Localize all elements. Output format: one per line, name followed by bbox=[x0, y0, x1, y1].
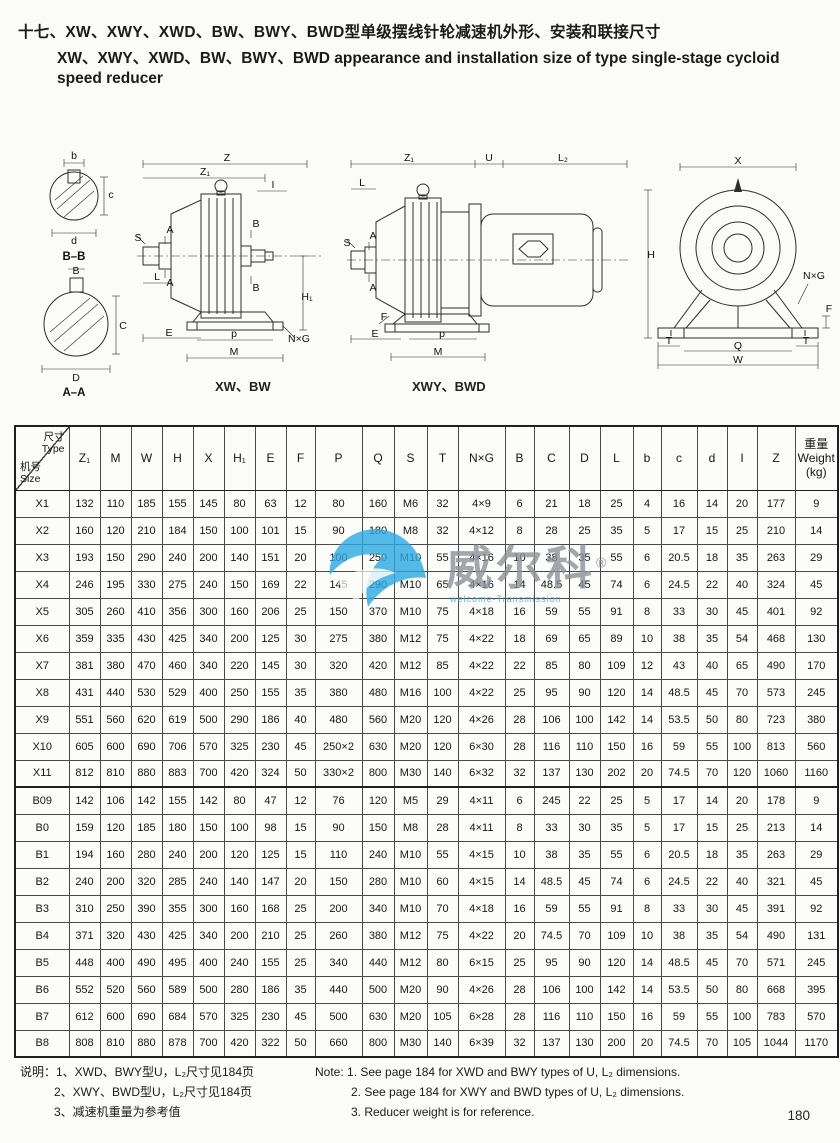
table-cell: 800 bbox=[362, 1030, 394, 1057]
table-cell: 120 bbox=[600, 679, 633, 706]
table-cell: 25 bbox=[505, 679, 534, 706]
table-cell: 45 bbox=[795, 868, 838, 895]
table-cell: 202 bbox=[600, 760, 633, 787]
table-cell: 240 bbox=[193, 868, 224, 895]
table-cell: 6×28 bbox=[458, 1003, 505, 1030]
table-cell: M6 bbox=[394, 490, 427, 517]
table-cell: 92 bbox=[795, 598, 838, 625]
table-cell: 63 bbox=[255, 490, 286, 517]
table-cell: 6×30 bbox=[458, 733, 505, 760]
table-cell: 55 bbox=[569, 598, 600, 625]
table-cell: 120 bbox=[600, 949, 633, 976]
table-cell: 18 bbox=[569, 490, 600, 517]
table-cell: 25 bbox=[727, 517, 757, 544]
table-cell: 500 bbox=[362, 976, 394, 1003]
table-cell: 50 bbox=[286, 1030, 315, 1057]
table-cell: 440 bbox=[100, 679, 131, 706]
table-cell: M12 bbox=[394, 652, 427, 679]
row-type: X4 bbox=[15, 571, 69, 598]
table-cell: 109 bbox=[600, 922, 633, 949]
table-cell: 120 bbox=[224, 841, 255, 868]
table-row: B119416028024020012012515110240M10554×15… bbox=[15, 841, 838, 868]
table-cell: 12 bbox=[286, 787, 315, 814]
table-cell: 160 bbox=[224, 895, 255, 922]
note-en-2: 2. See page 184 for XWY and BWD types of… bbox=[351, 1083, 820, 1103]
table-cell: 25 bbox=[286, 598, 315, 625]
table-cell: 10 bbox=[505, 544, 534, 571]
dimension-label: C bbox=[119, 320, 127, 332]
table-cell: 40 bbox=[727, 868, 757, 895]
table-cell: 240 bbox=[362, 841, 394, 868]
table-cell: 500 bbox=[315, 1003, 362, 1030]
table-cell: 25 bbox=[286, 949, 315, 976]
table-cell: 5 bbox=[633, 814, 661, 841]
table-cell: 137 bbox=[534, 760, 569, 787]
table-cell: 22 bbox=[697, 571, 727, 598]
table-cell: 14 bbox=[633, 679, 661, 706]
table-cell: 17 bbox=[661, 787, 697, 814]
table-cell: M10 bbox=[394, 598, 427, 625]
table-cell: 20 bbox=[727, 490, 757, 517]
table-cell: 200 bbox=[100, 868, 131, 895]
table-cell: 14 bbox=[697, 787, 727, 814]
table-cell: 155 bbox=[162, 490, 193, 517]
table-cell: 4×15 bbox=[458, 841, 505, 868]
row-type: B2 bbox=[15, 868, 69, 895]
table-cell: 20 bbox=[286, 868, 315, 895]
table-cell: 100 bbox=[224, 517, 255, 544]
table-cell: 213 bbox=[757, 814, 795, 841]
dimension-label: c bbox=[108, 189, 113, 201]
table-cell: 40 bbox=[727, 571, 757, 598]
table-cell: 80 bbox=[727, 706, 757, 733]
row-type: X2 bbox=[15, 517, 69, 544]
table-cell: 38 bbox=[661, 625, 697, 652]
table-cell: M5 bbox=[394, 787, 427, 814]
table-cell: 15 bbox=[286, 814, 315, 841]
table-cell: 14 bbox=[505, 571, 534, 598]
table-cell: 70 bbox=[697, 760, 727, 787]
table-cell: 109 bbox=[600, 652, 633, 679]
table-cell: 180 bbox=[162, 814, 193, 841]
table-cell: 25 bbox=[286, 895, 315, 922]
table-cell: 263 bbox=[757, 841, 795, 868]
table-row: X738138047046034022014530320420M12854×22… bbox=[15, 652, 838, 679]
column-header: X bbox=[193, 426, 224, 490]
table-cell: 240 bbox=[193, 571, 224, 598]
table-cell: 48.5 bbox=[534, 571, 569, 598]
dimension-label: I bbox=[272, 179, 275, 191]
table-cell: 1044 bbox=[757, 1030, 795, 1057]
dimension-label: W bbox=[733, 354, 743, 366]
table-cell: 4×22 bbox=[458, 922, 505, 949]
table-cell: 410 bbox=[131, 598, 162, 625]
table-cell: 340 bbox=[193, 625, 224, 652]
dimension-label: N×G bbox=[803, 270, 825, 282]
table-cell: 120 bbox=[727, 760, 757, 787]
table-cell: 145 bbox=[255, 652, 286, 679]
table-cell: 370 bbox=[362, 598, 394, 625]
table-cell: 12 bbox=[633, 652, 661, 679]
row-type: B09 bbox=[15, 787, 69, 814]
table-cell: 4 bbox=[633, 490, 661, 517]
table-cell: 195 bbox=[100, 571, 131, 598]
dimension-label: A bbox=[369, 282, 376, 294]
table-cell: 100 bbox=[569, 976, 600, 1003]
caption-xwy-bwd: XWY、BWD bbox=[412, 376, 486, 395]
table-cell: M20 bbox=[394, 1003, 427, 1030]
table-cell: 100 bbox=[315, 544, 362, 571]
table-cell: 45 bbox=[727, 598, 757, 625]
table-cell: 200 bbox=[193, 544, 224, 571]
table-cell: 425 bbox=[162, 625, 193, 652]
table-cell: 220 bbox=[224, 652, 255, 679]
table-cell: 40 bbox=[697, 652, 727, 679]
table-cell: 448 bbox=[69, 949, 100, 976]
table-cell: M12 bbox=[394, 625, 427, 652]
table-cell: 106 bbox=[534, 976, 569, 1003]
table-cell: 245 bbox=[534, 787, 569, 814]
table-cell: 53.5 bbox=[661, 976, 697, 1003]
table-cell: 520 bbox=[100, 976, 131, 1003]
table-cell: 35 bbox=[727, 544, 757, 571]
table-cell: 340 bbox=[315, 949, 362, 976]
table-cell: 250 bbox=[100, 895, 131, 922]
table-cell: 120 bbox=[100, 517, 131, 544]
dimension-label: U bbox=[485, 152, 493, 164]
table-cell: 808 bbox=[69, 1030, 100, 1057]
note-cn-2: 2、XWY、BWD型U，L₂尺寸见184页 bbox=[54, 1083, 310, 1103]
table-row: X21601202101841501001011590180M8324×1282… bbox=[15, 517, 838, 544]
table-cell: 500 bbox=[193, 976, 224, 1003]
table-cell: 560 bbox=[362, 706, 394, 733]
table-cell: 28 bbox=[534, 517, 569, 544]
table-cell: 43 bbox=[661, 652, 697, 679]
table-cell: 28 bbox=[505, 1003, 534, 1030]
table-cell: 170 bbox=[795, 652, 838, 679]
table-cell: 684 bbox=[162, 1003, 193, 1030]
table-cell: 55 bbox=[427, 544, 458, 571]
table-cell: 25 bbox=[505, 949, 534, 976]
table-cell: 85 bbox=[534, 652, 569, 679]
table-row: B655252056058950028018635440500M20904×26… bbox=[15, 976, 838, 1003]
table-cell: 280 bbox=[224, 976, 255, 1003]
table-cell: 200 bbox=[224, 922, 255, 949]
table-cell: 20 bbox=[286, 544, 315, 571]
table-cell: 80 bbox=[315, 490, 362, 517]
table-cell: 240 bbox=[162, 544, 193, 571]
table-cell: 120 bbox=[100, 814, 131, 841]
column-header: P bbox=[315, 426, 362, 490]
table-cell: 6 bbox=[633, 841, 661, 868]
technical-drawings: bcdB–BBCDA–A bbox=[0, 140, 840, 420]
table-cell: M20 bbox=[394, 733, 427, 760]
table-cell: 147 bbox=[255, 868, 286, 895]
table-cell: 12 bbox=[286, 490, 315, 517]
column-header: D bbox=[569, 426, 600, 490]
table-cell: 150 bbox=[193, 517, 224, 544]
table-cell: 95 bbox=[534, 679, 569, 706]
table-cell: 151 bbox=[255, 544, 286, 571]
table-cell: 589 bbox=[162, 976, 193, 1003]
dimension-label: d bbox=[71, 235, 77, 247]
dimension-label: S bbox=[343, 237, 350, 249]
table-cell: 69 bbox=[534, 625, 569, 652]
table-cell: 240 bbox=[224, 949, 255, 976]
table-cell: 305 bbox=[69, 598, 100, 625]
column-header: H₁ bbox=[224, 426, 255, 490]
table-cell: 15 bbox=[286, 841, 315, 868]
table-cell: 38 bbox=[534, 841, 569, 868]
table-cell: 25 bbox=[727, 814, 757, 841]
table-row: B0914210614215514280471276120M5294×11624… bbox=[15, 787, 838, 814]
column-header: L bbox=[600, 426, 633, 490]
table-cell: 320 bbox=[315, 652, 362, 679]
dimension-table-wrap: 尺寸Type机号SizeZ₁MWHXH₁EFPQSTN×GBCDLbcdIZ重量… bbox=[14, 425, 827, 1058]
table-cell: 8 bbox=[505, 814, 534, 841]
table-row: B880881088087870042032250660800M301406×3… bbox=[15, 1030, 838, 1057]
table-cell: 80 bbox=[427, 949, 458, 976]
table-cell: 20 bbox=[633, 1030, 661, 1057]
dimension-label: Z₁ bbox=[404, 152, 414, 164]
table-cell: 120 bbox=[427, 733, 458, 760]
table-cell: 22 bbox=[569, 787, 600, 814]
table-cell: 105 bbox=[427, 1003, 458, 1030]
table-cell: 880 bbox=[131, 1030, 162, 1057]
table-cell: 660 bbox=[315, 1030, 362, 1057]
xw-bw-drawing: ZZ₁ISAALBBH₁EpMN×G bbox=[135, 150, 325, 375]
table-cell: 246 bbox=[69, 571, 100, 598]
table-cell: 4×22 bbox=[458, 679, 505, 706]
table-cell: M10 bbox=[394, 571, 427, 598]
table-cell: 91 bbox=[600, 895, 633, 922]
table-cell: 600 bbox=[100, 733, 131, 760]
table-cell: 32 bbox=[427, 517, 458, 544]
table-cell: 330 bbox=[131, 571, 162, 598]
table-cell: 186 bbox=[255, 976, 286, 1003]
table-cell: 35 bbox=[600, 814, 633, 841]
table-cell: 90 bbox=[569, 679, 600, 706]
table-cell: 812 bbox=[69, 760, 100, 787]
table-cell: 290 bbox=[224, 706, 255, 733]
dimension-label: T bbox=[666, 335, 673, 347]
table-cell: 430 bbox=[131, 625, 162, 652]
table-cell: M10 bbox=[394, 895, 427, 922]
table-cell: 110 bbox=[100, 490, 131, 517]
column-header: Z₁ bbox=[69, 426, 100, 490]
xwy-bwd-drawing: Z₁UL₂LSAAFEpM bbox=[345, 150, 635, 375]
table-cell: 45 bbox=[286, 1003, 315, 1030]
page-title-en2: speed reducer bbox=[57, 70, 818, 88]
table-cell: 70 bbox=[569, 922, 600, 949]
table-cell: 340 bbox=[362, 895, 394, 922]
dimension-label: A bbox=[166, 277, 173, 289]
table-cell: 1060 bbox=[757, 760, 795, 787]
row-type: X9 bbox=[15, 706, 69, 733]
table-cell: M10 bbox=[394, 544, 427, 571]
table-row: B331025039035530016016825200340M10704×18… bbox=[15, 895, 838, 922]
table-row: X1181281088088370042032450330×2800M30140… bbox=[15, 760, 838, 787]
table-cell: 28 bbox=[505, 706, 534, 733]
table-cell: 35 bbox=[286, 976, 315, 1003]
dimension-label: B bbox=[252, 282, 259, 294]
row-type: X10 bbox=[15, 733, 69, 760]
column-header: C bbox=[534, 426, 569, 490]
table-cell: 54 bbox=[727, 922, 757, 949]
table-cell: 4×11 bbox=[458, 814, 505, 841]
table-cell: 4×26 bbox=[458, 706, 505, 733]
dimension-label: A–A bbox=[62, 387, 85, 399]
table-cell: 10 bbox=[633, 625, 661, 652]
table-cell: 1170 bbox=[795, 1030, 838, 1057]
table-row: X955156062061950029018640480560M201204×2… bbox=[15, 706, 838, 733]
table-row: B437132043042534020021025260380M12754×22… bbox=[15, 922, 838, 949]
table-cell: 100 bbox=[727, 733, 757, 760]
table-cell: 106 bbox=[534, 706, 569, 733]
table-cell: 140 bbox=[224, 544, 255, 571]
table-cell: 53.5 bbox=[661, 706, 697, 733]
table-cell: 420 bbox=[224, 1030, 255, 1057]
table-cell: 9 bbox=[795, 490, 838, 517]
table-cell: 91 bbox=[600, 598, 633, 625]
table-cell: 35 bbox=[286, 679, 315, 706]
table-cell: 25 bbox=[286, 922, 315, 949]
table-cell: 35 bbox=[569, 841, 600, 868]
table-cell: 70 bbox=[727, 679, 757, 706]
table-cell: 4×12 bbox=[458, 517, 505, 544]
dimension-label: H₁ bbox=[301, 291, 313, 303]
table-cell: M12 bbox=[394, 922, 427, 949]
table-cell: 4×18 bbox=[458, 598, 505, 625]
table-row: X113211018515514580631280160M6324×962118… bbox=[15, 490, 838, 517]
column-header: Q bbox=[362, 426, 394, 490]
dimension-label: X bbox=[734, 155, 741, 167]
dimension-label: b bbox=[71, 150, 77, 162]
table-cell: 600 bbox=[100, 1003, 131, 1030]
table-cell: 74 bbox=[600, 571, 633, 598]
table-cell: 38 bbox=[534, 544, 569, 571]
table-cell: 74.5 bbox=[661, 1030, 697, 1057]
table-cell: 178 bbox=[757, 787, 795, 814]
table-cell: 150 bbox=[100, 544, 131, 571]
table-cell: 10 bbox=[633, 922, 661, 949]
table-cell: 75 bbox=[427, 598, 458, 625]
note-cn-1: 说明：1、XWD、BWY型U，L₂尺寸见184页 bbox=[20, 1063, 310, 1083]
dimension-label: L bbox=[359, 177, 365, 189]
table-cell: M12 bbox=[394, 949, 427, 976]
table-cell: 355 bbox=[162, 895, 193, 922]
table-cell: 4×22 bbox=[458, 625, 505, 652]
row-type: X8 bbox=[15, 679, 69, 706]
table-cell: 142 bbox=[69, 787, 100, 814]
table-cell: 125 bbox=[255, 841, 286, 868]
table-cell: 35 bbox=[727, 841, 757, 868]
column-header: N×G bbox=[458, 426, 505, 490]
table-cell: 340 bbox=[193, 652, 224, 679]
table-cell: M10 bbox=[394, 868, 427, 895]
table-cell: 321 bbox=[757, 868, 795, 895]
table-cell: 25 bbox=[600, 490, 633, 517]
table-cell: 70 bbox=[427, 895, 458, 922]
table-cell: 59 bbox=[534, 895, 569, 922]
table-cell: 32 bbox=[427, 490, 458, 517]
table-cell: 551 bbox=[69, 706, 100, 733]
table-cell: 395 bbox=[795, 976, 838, 1003]
table-cell: 6×15 bbox=[458, 949, 505, 976]
table-cell: 4×22 bbox=[458, 652, 505, 679]
table-cell: 150 bbox=[362, 814, 394, 841]
table-cell: 530 bbox=[131, 679, 162, 706]
dimension-label: T bbox=[803, 335, 810, 347]
table-cell: 16 bbox=[505, 895, 534, 922]
table-cell: 150 bbox=[315, 598, 362, 625]
table-cell: 150 bbox=[224, 571, 255, 598]
table-cell: 380 bbox=[315, 679, 362, 706]
caption-xw-bw: XW、BW bbox=[215, 376, 271, 395]
table-cell: 101 bbox=[255, 517, 286, 544]
table-cell: 4×9 bbox=[458, 490, 505, 517]
table-cell: 700 bbox=[193, 1030, 224, 1057]
table-cell: 250×2 bbox=[315, 733, 362, 760]
dimension-table: 尺寸Type机号SizeZ₁MWHXH₁EFPQSTN×GBCDLbcdIZ重量… bbox=[14, 425, 839, 1058]
table-cell: 690 bbox=[131, 733, 162, 760]
dimension-label: Q bbox=[734, 340, 742, 352]
table-header: 尺寸Type机号SizeZ₁MWHXH₁EFPQSTN×GBCDLbcdIZ重量… bbox=[15, 426, 838, 490]
table-cell: 324 bbox=[757, 571, 795, 598]
table-cell: 460 bbox=[162, 652, 193, 679]
table-cell: 90 bbox=[569, 949, 600, 976]
table-cell: 92 bbox=[795, 895, 838, 922]
table-cell: 690 bbox=[131, 1003, 162, 1030]
footnotes-cn: 说明：1、XWD、BWY型U，L₂尺寸见184页 2、XWY、BWD型U，L₂尺… bbox=[20, 1063, 310, 1122]
table-cell: 14 bbox=[795, 814, 838, 841]
column-header: W bbox=[131, 426, 162, 490]
table-cell: 22 bbox=[505, 652, 534, 679]
table-cell: 230 bbox=[255, 1003, 286, 1030]
table-cell: 47 bbox=[255, 787, 286, 814]
table-cell: 70 bbox=[727, 949, 757, 976]
table-cell: 35 bbox=[569, 544, 600, 571]
table-cell: 95 bbox=[534, 949, 569, 976]
table-cell: 98 bbox=[255, 814, 286, 841]
table-cell: 8 bbox=[633, 598, 661, 625]
table-cell: 4×26 bbox=[458, 976, 505, 1003]
table-cell: M16 bbox=[394, 679, 427, 706]
table-cell: 340 bbox=[193, 922, 224, 949]
table-cell: 380 bbox=[795, 706, 838, 733]
table-cell: 38 bbox=[661, 922, 697, 949]
table-cell: 10 bbox=[505, 841, 534, 868]
row-type: B7 bbox=[15, 1003, 69, 1030]
table-cell: 250 bbox=[362, 544, 394, 571]
dimension-label: E bbox=[165, 327, 172, 339]
table-cell: 106 bbox=[100, 787, 131, 814]
dimension-label: L bbox=[154, 271, 160, 283]
table-cell: 18 bbox=[697, 544, 727, 571]
table-cell: 620 bbox=[131, 706, 162, 733]
table-cell: 16 bbox=[661, 490, 697, 517]
table-cell: 16 bbox=[633, 1003, 661, 1030]
table-cell: 813 bbox=[757, 733, 795, 760]
table-cell: 30 bbox=[697, 895, 727, 922]
table-cell: 668 bbox=[757, 976, 795, 1003]
table-cell: 22 bbox=[697, 868, 727, 895]
column-header: b bbox=[633, 426, 661, 490]
table-cell: 560 bbox=[100, 706, 131, 733]
table-cell: 25 bbox=[569, 517, 600, 544]
table-cell: 130 bbox=[795, 625, 838, 652]
row-type: B8 bbox=[15, 1030, 69, 1057]
